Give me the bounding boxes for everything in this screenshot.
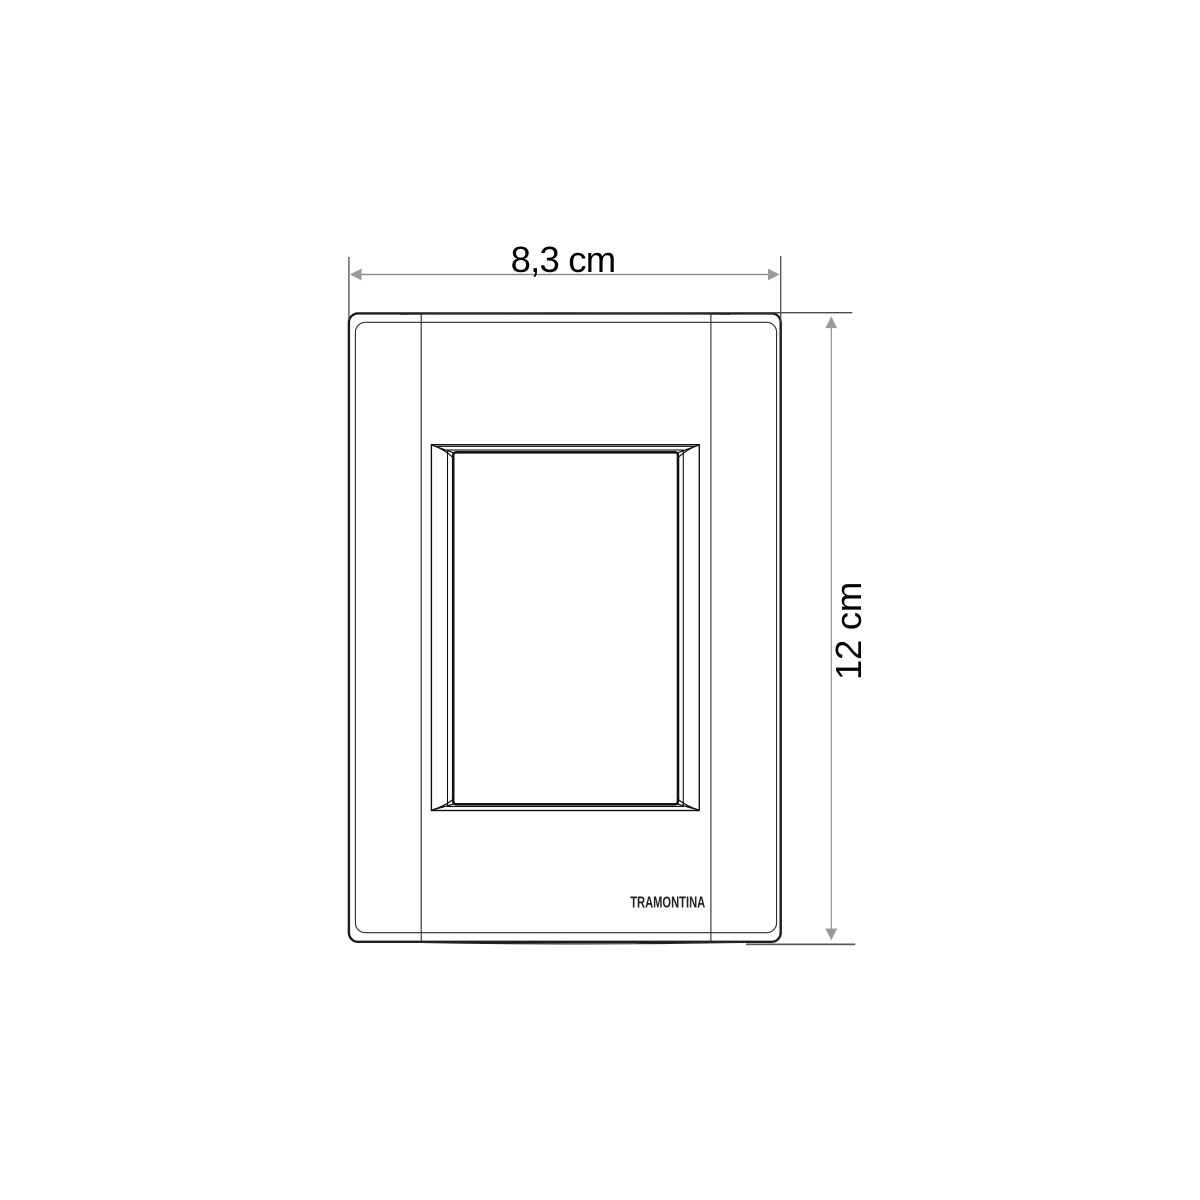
svg-text:12 cm: 12 cm [828,582,869,680]
svg-text:TRAMONTINA: TRAMONTINA [630,894,705,911]
svg-text:8,3 cm: 8,3 cm [511,239,616,280]
